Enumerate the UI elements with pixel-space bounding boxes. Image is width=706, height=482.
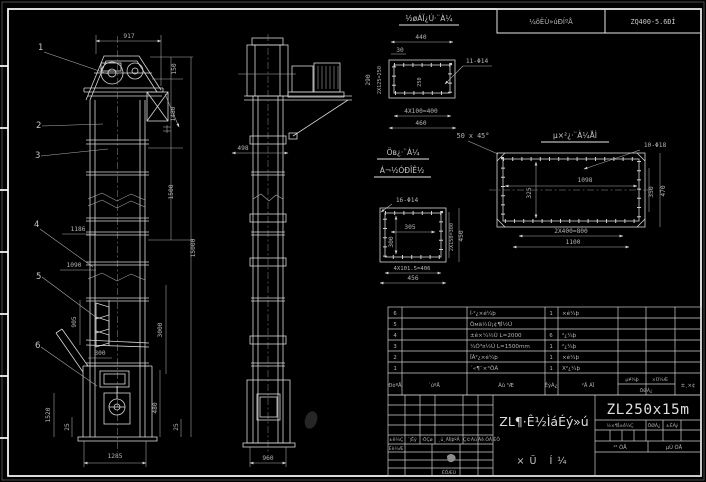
sheet-frame xyxy=(0,2,704,480)
dim-2x400: 2X400=800 xyxy=(554,228,588,235)
front-elevation-view: 1 2 3 4 5 6 917 150 xyxy=(34,33,197,467)
bom-row-name: ±ê×¼½Ú L=2000 xyxy=(470,332,522,339)
bom-row-name: Í·²¿×é¼þ xyxy=(470,310,496,317)
bom-row-qty: 1 xyxy=(549,311,552,317)
dim-30: 30 xyxy=(396,47,404,54)
dim-1090: 1090 xyxy=(67,262,82,269)
signature-blob xyxy=(447,454,456,462)
dim-1500: 1500 xyxy=(168,184,175,199)
drawing-subtitle: ×Ü Í¼ xyxy=(517,455,572,467)
title-block: ±ê¼Ç ´¦Êý ·ÖÇø ¸ü¸ÄÎļþºÅ Ç©Ãû Äê.ÔÂ.ÈÕ É… xyxy=(388,395,701,476)
page-label: µÚ ÕÅ xyxy=(666,444,683,451)
cad-drawing-canvas[interactable]: ¼õËÙ»úÐÍºÅ ZQ400-5.6ÐÍ xyxy=(0,0,706,482)
holes-16-d14: 16-Φ14 xyxy=(396,197,419,204)
dim-1098: 1098 xyxy=(578,177,593,184)
bom-header-wsub: ÖØÁ¿ xyxy=(640,387,653,394)
motor-fins xyxy=(318,66,338,89)
rev-header-docno: ¸ü¸ÄÎļþºÅ xyxy=(438,436,460,443)
balloon-4: 4 xyxy=(34,220,39,230)
dim-450: 450 xyxy=(458,230,465,241)
dim-440: 440 xyxy=(415,34,426,41)
bom-row-no: 4 xyxy=(393,333,397,339)
balloon-2: 2 xyxy=(36,121,41,131)
detail-mid-title-2: Á¬½ÓÐÎÊ½ xyxy=(380,166,425,175)
bom-row-name: ¼Ó³¤½Ú L=1500mm xyxy=(470,343,530,350)
dim-150: 150 xyxy=(171,63,178,74)
model-number: ZL250x15m xyxy=(606,402,689,418)
dim-300: 300 xyxy=(94,350,105,357)
dim-3000: 3000 xyxy=(157,322,164,337)
rev-header-date: Äê.ÔÂ.ÈÕ xyxy=(478,435,500,443)
dim-4x100: 4X100=400 xyxy=(404,108,438,115)
bom-header-mat: ²Ä ÁÏ xyxy=(582,382,595,389)
dim-1285: 1285 xyxy=(108,453,123,460)
balloon-leaders xyxy=(40,52,108,386)
bom-header-w1: µ¥¼þ xyxy=(625,377,638,383)
bom-row-mat: ²¿¼þ xyxy=(562,343,577,350)
balloon-1: 1 xyxy=(38,43,43,53)
dim-350: 350 xyxy=(648,186,655,197)
holes-11-d14: 11-Φ14 xyxy=(466,58,489,65)
bom-row-no: 6 xyxy=(393,311,396,317)
bom-header-name: Ãû ³Æ xyxy=(498,382,514,389)
watermark-smudge xyxy=(303,410,320,431)
dim-2x125: 2X125=250 xyxy=(377,66,383,94)
bom-row-mat: ²¿¼þ xyxy=(562,332,577,339)
balloon-6: 6 xyxy=(35,341,40,351)
dim-25-left: 25 xyxy=(64,423,71,431)
dim-300v: 300 xyxy=(388,236,395,247)
scale-label: ±ÈÀý xyxy=(666,421,679,429)
dim-4x101: 4X101.5=406 xyxy=(393,266,430,272)
sheets-label: ¹² ÕÅ xyxy=(613,444,627,451)
bom-header-qty: ÊýÁ¿ xyxy=(545,381,558,389)
detail-outlet-flange: ½øÁÏ¿Ú·¨À¼ 440 30 250 290 2X125=250 11-Φ… xyxy=(365,14,498,154)
dim-outlet-inner: 250 xyxy=(417,77,423,86)
bom-header-w2: ×Ü¼Æ xyxy=(652,376,669,383)
dim-1186: 1186 xyxy=(71,226,86,233)
dim-325: 325 xyxy=(526,187,533,198)
bom-header-rk: ±¸×¢ xyxy=(681,383,696,389)
bom-row-name: ÏÂ²¿×é¼þ xyxy=(470,354,498,361)
bom-header-code: ´úºÅ xyxy=(428,382,440,389)
dim-1480: 1480 xyxy=(170,106,177,121)
detail-base-title: µ×²¿·¨À¼ÅÌ xyxy=(553,131,597,140)
buckets xyxy=(96,300,109,347)
bom-row-qty: 6 xyxy=(549,333,552,339)
dim-2x150: 2X150=300 xyxy=(449,223,455,251)
bom-row-no: 5 xyxy=(393,322,396,328)
reducer-model-value: ZQ400-5.6ÐÍ xyxy=(630,17,675,26)
detail-middle-flange: Öв¿·¨À¼ Á¬½ÓÐÎÊ½ 16-Φ14 305 300 2X150=30… xyxy=(374,148,465,283)
detail-mid-title-1: Öв¿·¨À¼ xyxy=(387,148,421,157)
dim-305: 305 xyxy=(404,224,415,231)
bom-rows: 6 Í·²¿×é¼þ 1 ×é¼þ 5 Öмä½Ú¡¢¶Ì½Ú 4 ±ê×¼½Ú… xyxy=(393,310,580,372)
bom-row-no: 1 xyxy=(393,366,396,372)
rev-header-zone: ·ÖÇø xyxy=(421,436,432,443)
reducer-label: ¼õËÙ»úÐÍºÅ xyxy=(529,17,573,26)
dim-456: 456 xyxy=(407,275,418,282)
bom-row-mat: X²¿¼þ xyxy=(562,365,580,372)
sig-date-label: ÈÕÆÚ xyxy=(442,468,456,476)
detail-outlet-title: ½øÁÏ¿Ú·¨À¼ xyxy=(405,14,453,23)
dim-1100: 1100 xyxy=(566,239,581,246)
dim-15000: 15000 xyxy=(190,238,197,257)
weight-label: ÖØÁ¿ xyxy=(648,422,661,429)
bom-row-no: 3 xyxy=(393,344,396,350)
bom-row-no: 2 xyxy=(393,355,396,361)
dim-960: 960 xyxy=(262,455,273,462)
dim-905: 905 xyxy=(71,316,78,327)
side-elevation-view: 498 960 xyxy=(232,34,352,467)
rev-header-count: ´¦Êý xyxy=(407,435,417,443)
stage-label: ½×¶Î±ê¼Ç xyxy=(607,422,634,429)
bom-header: ÐòºÅ ´úºÅ Ãû ³Æ ÊýÁ¿ ²Ä ÁÏ µ¥¼þ ×Ü¼Æ ÖØÁ… xyxy=(388,376,695,394)
dim-290: 290 xyxy=(365,74,372,85)
drawing-title: ZL¶·Ê½ÌáÉý»ú xyxy=(499,414,588,429)
bom-row-name: Öмä½Ú¡¢¶Ì½Ú xyxy=(470,321,512,328)
bom-table: 6 Í·²¿×é¼þ 1 ×é¼þ 5 Öмä½Ú¡¢¶Ì½Ú 4 ±ê×¼½Ú… xyxy=(388,307,701,395)
bom-row-mat: ×é¼þ xyxy=(562,354,580,361)
bom-row-qty: 1 xyxy=(549,355,552,361)
dim-917: 917 xyxy=(123,33,134,40)
bom-header-no: ÐòºÅ xyxy=(388,382,402,389)
dim-470: 470 xyxy=(660,185,667,196)
dim-25-right: 25 xyxy=(173,423,180,431)
rev-header-mark: ±ê¼Ç xyxy=(389,436,403,443)
bom-row-qty: 1 xyxy=(549,344,552,350)
dim-480: 480 xyxy=(152,402,159,413)
cad-drawing: ¼õËÙ»úÐÍºÅ ZQ400-5.6ÐÍ xyxy=(0,0,706,482)
balloon-3: 3 xyxy=(35,151,40,161)
detail-base-flange: µ×²¿·¨À¼ÅÌ 10-Φ18 1098 325 350 470 2X400… xyxy=(489,131,667,247)
dim-1520: 1520 xyxy=(45,407,52,422)
balloon-5: 5 xyxy=(36,272,41,282)
dim-498: 498 xyxy=(237,145,248,152)
bom-row-qty: 1 xyxy=(549,366,552,372)
bom-row-name: ´«¶¯×°ÖÃ xyxy=(470,365,498,372)
dim-460: 460 xyxy=(415,120,426,127)
sig-design-label: Éè¼Æ xyxy=(389,444,404,452)
rev-header-sign: Ç©Ãû xyxy=(463,436,477,443)
bom-row-mat: ×é¼þ xyxy=(562,310,580,317)
header-boxes: ¼õËÙ»úÐÍºÅ ZQ400-5.6ÐÍ xyxy=(497,9,701,33)
holes-10-d18: 10-Φ18 xyxy=(644,142,667,149)
chamfer-note: 50 x 45° xyxy=(457,132,490,140)
